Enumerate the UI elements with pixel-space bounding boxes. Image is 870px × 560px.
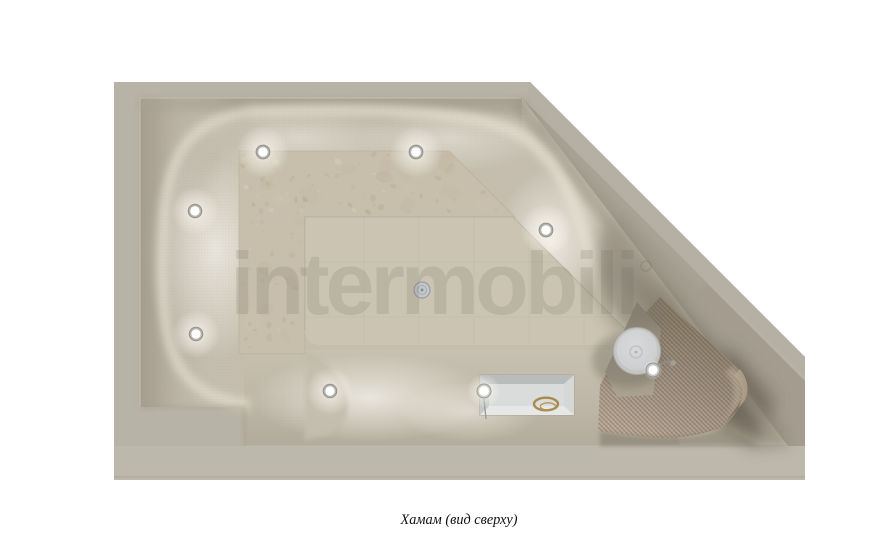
svg-text:intermobili: intermobili <box>230 234 636 333</box>
